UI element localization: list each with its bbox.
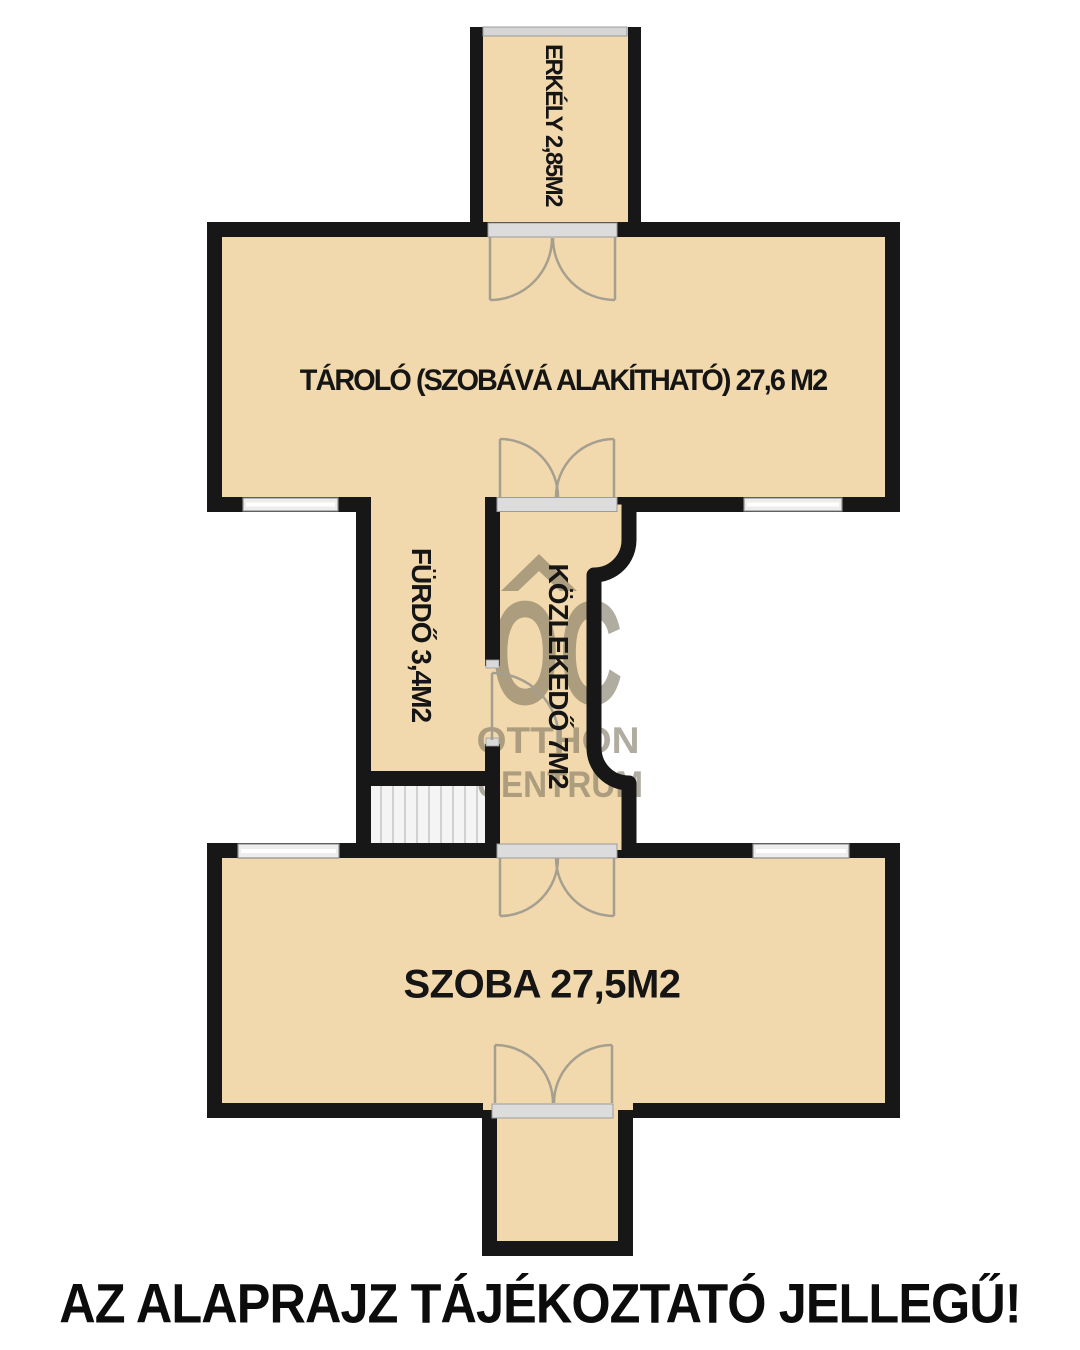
floorplan-canvas: OC OTTHON CENTRUM — [0, 0, 1080, 1350]
storage-label: TÁROLÓ (SZOBÁVÁ ALAKÍTHATÓ) 27,6 M2 — [300, 364, 826, 398]
storage-window-left — [243, 498, 338, 511]
room-window-left — [238, 844, 339, 858]
storage-window-right — [744, 498, 842, 511]
balcony-door-threshold — [488, 223, 617, 237]
balcony-railing — [483, 27, 627, 36]
room-label: SZOBA 27,5M2 — [403, 963, 680, 1008]
bathroom-door-jamb-top — [486, 660, 499, 668]
entry-floor — [483, 1103, 633, 1256]
hallway-room-threshold — [497, 844, 617, 858]
room-window-right — [753, 844, 849, 858]
balcony-label: ERKÉLY 2,85M2 — [539, 44, 567, 206]
bathroom-label: FÜRDŐ 3,4M2 — [405, 548, 437, 722]
room-entry-threshold — [492, 1104, 613, 1118]
disclaimer-text: AZ ALAPRAJZ TÁJÉKOZTATÓ JELLEGŰ! — [59, 1271, 1020, 1336]
storage-hallway-threshold — [497, 498, 617, 512]
hallway-label: KÖZLEKEDŐ 7M2 — [542, 563, 574, 788]
